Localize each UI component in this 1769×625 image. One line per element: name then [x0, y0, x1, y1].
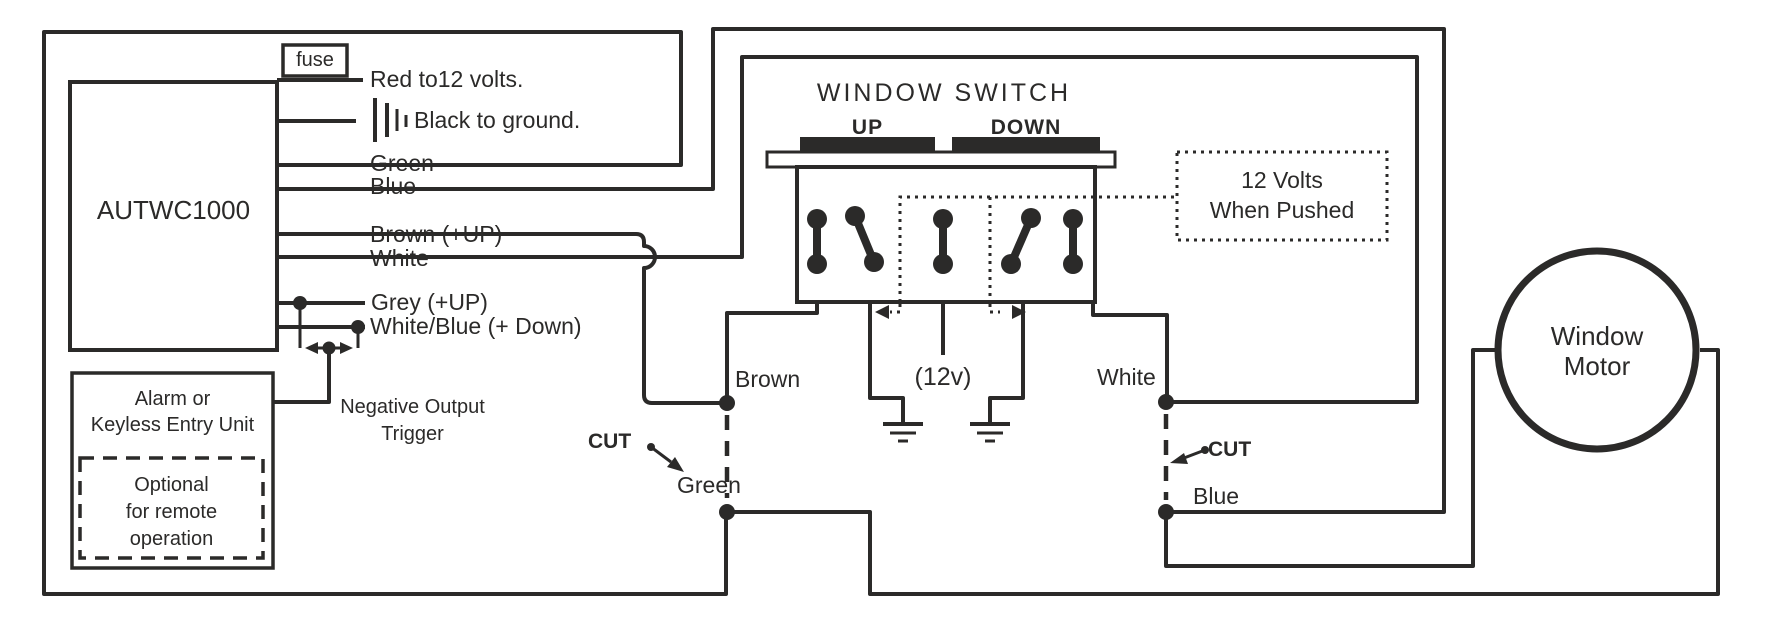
red-wire-label: Red to12 volts. — [370, 67, 523, 92]
contact-5-bottom-dot — [1063, 254, 1083, 274]
trigger-junction-dot — [323, 342, 336, 355]
twelve-volts-note-line2: When Pushed — [1177, 196, 1387, 226]
grey-junction-dot — [293, 296, 307, 310]
contact-2-top-dot — [845, 206, 865, 226]
alarm-unit-title: Alarm or Keyless Entry Unit — [72, 386, 273, 438]
grey-wire-label: Grey (+UP) — [371, 290, 488, 315]
switch-down-button[interactable] — [952, 137, 1100, 152]
blue-junction-label: Blue — [1193, 484, 1239, 509]
white-wire-junction-dot — [1158, 394, 1174, 410]
optional-note: Optional for remote operation — [80, 472, 263, 553]
supply-voltage-label: (12v) — [905, 364, 981, 392]
window-motor-label: Window Motor — [1497, 322, 1697, 382]
cut-right-label: CUT — [1208, 438, 1251, 461]
contact-3-bottom-dot — [933, 254, 953, 274]
trigger-left-arrow-icon — [305, 342, 318, 354]
fuse-label: fuse — [283, 49, 347, 71]
cut-left-label: CUT — [588, 430, 631, 453]
contact-2-bottom-dot — [864, 252, 884, 272]
window-motor-label-line2: Motor — [1497, 352, 1697, 382]
contact-4-bottom-dot — [1001, 254, 1021, 274]
white-junction-label: White — [1097, 365, 1156, 390]
alarm-unit-title-line2: Keyless Entry Unit — [72, 412, 273, 438]
switch-plate — [767, 152, 1115, 167]
pushed-left-elbow — [890, 304, 900, 312]
black-wire-label: Black to ground. — [414, 108, 580, 133]
switch-down-label: DOWN — [952, 116, 1100, 139]
chassis-ground-left-stem — [870, 302, 903, 422]
contact-1-top-dot — [807, 209, 827, 229]
contact-3-top-dot — [933, 209, 953, 229]
ground-symbol-icon — [375, 98, 406, 142]
optional-note-line2: for remote — [80, 499, 263, 526]
green-wire-junction-dot — [719, 504, 735, 520]
switch-up-label: UP — [800, 116, 935, 139]
white-wire-label: White — [370, 246, 429, 271]
window-switch-title: WINDOW SWITCH — [788, 80, 1100, 108]
optional-note-line1: Optional — [80, 472, 263, 499]
cut-right-arrow — [1170, 446, 1209, 464]
optional-note-line3: operation — [80, 526, 263, 553]
pushed-left-arrow-icon — [875, 305, 889, 319]
brown-wire-junction-dot — [719, 395, 735, 411]
blue-wire-junction-dot — [1158, 504, 1174, 520]
alarm-unit-title-line1: Alarm or — [72, 386, 273, 412]
brown-junction-label: Brown — [735, 367, 800, 392]
white-blue-junction-dot — [351, 320, 365, 334]
window-motor-label-line1: Window — [1497, 322, 1697, 352]
brown-wire-label: Brown (+UP) — [370, 222, 502, 247]
trigger-right-arrow-icon — [340, 342, 353, 354]
cut-right-arrow-head-icon — [1170, 453, 1188, 464]
wiring-diagram: AUTWC1000 fuse Red to12 volts. Black to … — [0, 0, 1769, 625]
pushed-right-elbow — [990, 304, 1000, 312]
cut-left-arrow-line — [651, 447, 671, 462]
twelve-volts-note: 12 Volts When Pushed — [1177, 166, 1387, 226]
switch-up-button[interactable] — [800, 137, 935, 152]
cut-left-arrow — [647, 443, 684, 472]
contact-4-top-dot — [1021, 208, 1041, 228]
contact-1-bottom-dot — [807, 254, 827, 274]
module-label: AUTWC1000 — [70, 196, 277, 225]
contact-5-top-dot — [1063, 209, 1083, 229]
negative-trigger-line1: Negative Output — [330, 394, 495, 421]
negative-trigger-label: Negative Output Trigger — [330, 394, 495, 448]
blue-wire-label: Blue — [370, 174, 416, 199]
twelve-volts-note-line1: 12 Volts — [1177, 166, 1387, 196]
green-junction-label: Green — [677, 473, 741, 498]
trigger-wire-path — [273, 348, 329, 402]
cut-right-arrow-line — [1184, 450, 1205, 458]
negative-trigger-line2: Trigger — [330, 421, 495, 448]
white-blue-wire-label: White/Blue (+ Down) — [370, 314, 582, 339]
chassis-ground-right-stem — [990, 302, 1023, 422]
